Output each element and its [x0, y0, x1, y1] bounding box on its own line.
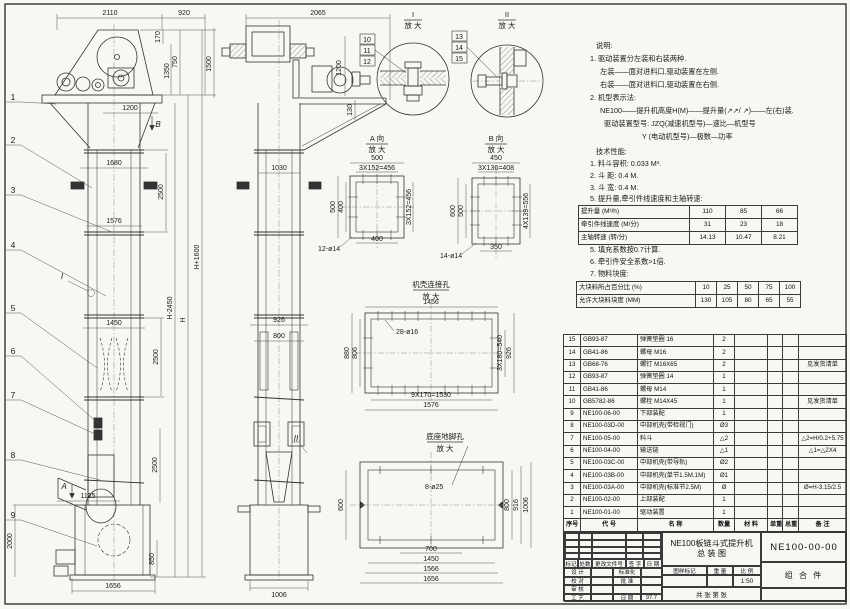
table-cell: GB41-86 [581, 347, 638, 359]
table-cell [799, 421, 847, 433]
dim-text: 3X152=456 [406, 189, 413, 225]
bom-header-cell: 总重 [783, 519, 799, 531]
table-cell: 1 [564, 507, 581, 519]
revision-header-cell: 更改文件号 [592, 559, 626, 568]
table-cell: NE100-05-00 [581, 433, 638, 445]
table-row: 12GB93-87弹簧垫圈 141 [564, 371, 847, 383]
table-cell: GB68-76 [581, 359, 638, 371]
dim-text: 9X170=1530 [411, 392, 451, 399]
revision-header-cell: 标记 [564, 559, 578, 568]
note-text: 右装——面对进料口,驱动装置在右侧. [600, 80, 719, 89]
table-cell: NE100-06-00 [581, 408, 638, 420]
table-cell [735, 408, 768, 420]
note-text: 技术性能: [596, 147, 627, 156]
table-cell: 105 [717, 295, 738, 308]
note-text: 5. 提升量,牵引件线速度和主轴转速: [590, 194, 703, 203]
box-text: 12 [363, 59, 371, 66]
table-cell: Ø3 [714, 421, 735, 433]
table-cell: 主轴转速 (转/分) [579, 232, 690, 245]
table-cell: 10 [696, 282, 717, 295]
table-row: 允许大块料块度 (MM)130105806555 [577, 295, 801, 308]
table-cell [783, 384, 799, 396]
title-text: 放 大 [404, 20, 422, 30]
signature-cell [641, 568, 662, 577]
table-cell: 85 [726, 206, 762, 219]
table-cell [735, 507, 768, 519]
drawing-number: NE100-00-00 [761, 532, 847, 562]
dim-text: 3X152=456 [359, 165, 395, 172]
scale-value: 1:50 [733, 575, 761, 587]
table-row: 牵引件线速度 (M/分)312318 [579, 219, 798, 232]
table-cell: 8 [564, 421, 581, 433]
revision-blank-cell [626, 533, 644, 540]
table-cell: 4 [564, 470, 581, 482]
table-cell [735, 384, 768, 396]
bom-header-cell: 名 称 [638, 519, 714, 531]
signature-row: 设 计标准化 [564, 568, 662, 577]
table-cell [735, 421, 768, 433]
table-cell [735, 482, 768, 494]
table-cell: Ø=H-3.15/2.5 [799, 482, 847, 494]
table-cell [768, 347, 783, 359]
table-cell [783, 359, 799, 371]
table-row: 6NE100-04-00输送链△1△1=△2X4 [564, 445, 847, 457]
table-cell: 见发货清单 [799, 396, 847, 408]
signature-row: 工 艺日 期97.7 [564, 594, 662, 603]
dim-text: 1576 [423, 402, 439, 409]
note-text: 6. 牵引件安全系数>1倍. [590, 257, 666, 266]
title-block: 标记处数更改文件号签 字日 期 设 计标准化校 对批 准审 核工 艺日 期97.… [563, 531, 846, 601]
revision-blank-cell [565, 540, 579, 547]
note-text: 左装——面对进料口,驱动装置在左侧. [600, 67, 719, 76]
table-cell: 输送链 [638, 445, 714, 457]
bom-parts-list: 15GB93-87弹簧垫圈 16214GB41-86螺母 M16213GB68-… [563, 334, 847, 532]
dimension-lines [5, 14, 531, 594]
dim-text: 600 [450, 205, 457, 217]
table-cell: 31 [690, 219, 726, 232]
table-cell [768, 359, 783, 371]
note-text: 5. 填充系数按0.7计算. [590, 245, 660, 254]
part-class: 组 合 件 [761, 562, 847, 588]
sheet-count: 共 张 第 张 [662, 587, 761, 602]
table-cell: 1 [714, 507, 735, 519]
signature-rows: 设 计标准化校 对批 准审 核工 艺日 期97.7 [564, 568, 662, 602]
tech-table-capacity: 提升量 (M³/h)1108566牵引件线速度 (M/分)312318主轴转速 … [578, 205, 798, 245]
scale-header-cell: 重 量 [707, 566, 733, 575]
table-cell: 6 [564, 445, 581, 457]
dim-text: 2500 [152, 457, 159, 473]
stamp-cell [662, 575, 707, 587]
dim-text: 12-ø14 [318, 246, 340, 253]
note-text: 1. 料斗容积: 0.033 M³. [590, 159, 661, 168]
table-cell: NE100-03D-00 [581, 421, 638, 433]
dim-text: 806 [352, 347, 359, 359]
revision-blank-cell [643, 533, 661, 540]
bom-header-cell: 备 注 [799, 519, 847, 531]
detail-ii [452, 20, 543, 117]
table-cell: 中部机壳(带检视门) [638, 421, 714, 433]
table-cell: NE100-02-00 [581, 494, 638, 506]
revision-blank-cell [579, 533, 593, 540]
signature-cell [591, 594, 613, 603]
table-cell [735, 433, 768, 445]
table-cell [783, 457, 799, 469]
balloon-text: 7 [11, 390, 16, 400]
table-cell: 1 [714, 384, 735, 396]
table-cell: 8.21 [762, 232, 798, 245]
table-cell: 130 [696, 295, 717, 308]
title-text: I [412, 10, 414, 19]
revision-blank-row [565, 540, 661, 547]
table-cell: Ø2 [714, 457, 735, 469]
table-cell: GB5782-86 [581, 396, 638, 408]
table-cell: Ø1 [714, 470, 735, 482]
table-cell: 驱动装置 [638, 507, 714, 519]
table-cell: 中部机壳(带导轨) [638, 457, 714, 469]
table-cell: 下部装配 [638, 408, 714, 420]
dim-text: 1566 [423, 566, 439, 573]
title-text: II [505, 10, 509, 19]
signature-cell [641, 585, 662, 594]
scale-header-cell: 比 例 [733, 566, 761, 575]
base-holes-detail [350, 442, 512, 548]
dim-text: 926 [273, 317, 285, 324]
revision-blank-row [565, 547, 661, 554]
table-cell: 25 [717, 282, 738, 295]
revision-header-cell: 处数 [578, 559, 592, 568]
table-cell: NE100-03C-00 [581, 457, 638, 469]
dim-text: 600 [338, 499, 345, 511]
table-cell: 10 [564, 396, 581, 408]
signature-cell: 审 核 [564, 585, 591, 594]
table-cell: GB41-86 [581, 384, 638, 396]
table-cell [783, 396, 799, 408]
revision-blank-cell [579, 540, 593, 547]
table-cell [799, 494, 847, 506]
revision-blank-cell [565, 533, 579, 540]
dim-text: 400 [371, 236, 383, 243]
table-cell: 弹簧垫圈 16 [638, 335, 714, 347]
balloon-text: 1 [11, 92, 16, 102]
box-text: 10 [363, 37, 371, 44]
table-cell [799, 507, 847, 519]
table-cell [783, 347, 799, 359]
table-row: 10GB5782-86螺栓 M14X451见发货清单 [564, 396, 847, 408]
title-text: 放 大 [487, 144, 505, 154]
dim-text: 1350 [164, 63, 171, 79]
note-text: 2. 斗 距: 0.4 M. [590, 171, 638, 180]
table-cell: 螺母 M16 [638, 347, 714, 359]
title-text: B 向 [489, 133, 504, 143]
revision-blank-cell [626, 540, 644, 547]
dim-text: 500 [458, 205, 465, 217]
dim-text: 130 [347, 104, 354, 116]
dim-text: 1200 [122, 105, 138, 112]
box-text: 11 [363, 48, 370, 55]
table-row: 13GB68-76螺钉 M16X652见发货清单 [564, 359, 847, 371]
revision-blank-cell [643, 540, 661, 547]
revision-header-row: 标记处数更改文件号签 字日 期 [564, 559, 662, 568]
table-cell: △2=H/0.2+5.75 [799, 433, 847, 445]
drawing-title-line1: NE100板链斗式提升机 [670, 539, 752, 549]
detail-i [360, 20, 449, 115]
dim-text: 850 [149, 553, 156, 565]
dim-text: 1456 [423, 299, 439, 306]
table-cell [799, 408, 847, 420]
side-elevation [222, 20, 386, 582]
signature-cell: 日 期 [613, 594, 641, 603]
table-cell [799, 371, 847, 383]
table-cell [735, 359, 768, 371]
table-cell [768, 470, 783, 482]
table-cell: 1 [714, 494, 735, 506]
dim-text: 1656 [105, 583, 121, 590]
table-cell: 13 [564, 359, 581, 371]
dim-text: 28-ø16 [396, 329, 418, 336]
bom-header-cell: 代 号 [581, 519, 638, 531]
table-cell: 80 [738, 295, 759, 308]
front-elevation [42, 24, 162, 582]
dim-text: 916 [513, 499, 520, 511]
table-cell: NE100-03B-00 [581, 470, 638, 482]
table-row: 1NE100-01-00驱动装置1 [564, 507, 847, 519]
dim-text: 14-ø14 [440, 253, 462, 260]
dim-text: 1006 [523, 497, 530, 513]
table-cell [735, 445, 768, 457]
table-cell: GB93-87 [581, 335, 638, 347]
table-cell: 9 [564, 408, 581, 420]
title-text: 机壳连接孔 [412, 279, 450, 289]
table-row: 2NE100-02-00上部装配1 [564, 494, 847, 506]
signature-cell: 设 计 [564, 568, 591, 577]
dim-text: 926 [506, 347, 513, 359]
table-cell: 2 [714, 359, 735, 371]
table-cell: 1 [714, 408, 735, 420]
dim-text: 3X136=408 [478, 165, 514, 172]
signature-cell: 批 准 [613, 577, 641, 586]
table-cell: 螺栓 M14X45 [638, 396, 714, 408]
table-row: 15GB93-87弹簧垫圈 162 [564, 335, 847, 347]
table-cell [735, 396, 768, 408]
dim-text: 750 [172, 56, 179, 68]
table-row: 大块料所占百分比 (%)10255075100 [577, 282, 801, 295]
revision-blank-cell [565, 547, 579, 554]
table-cell [768, 433, 783, 445]
note-text: 7. 物料块度: [590, 269, 629, 278]
dim-text: 450 [490, 155, 502, 162]
box-text: 15 [455, 56, 463, 63]
signature-cell [591, 568, 613, 577]
table-cell: 15 [564, 335, 581, 347]
table-cell [783, 421, 799, 433]
table-row: 主轴转速 (转/分)14.1310.478.21 [579, 232, 798, 245]
table-cell: 提升量 (M³/h) [579, 206, 690, 219]
table-cell [735, 347, 768, 359]
table-cell [735, 470, 768, 482]
dim-text: 2110 [102, 10, 117, 17]
table-cell [768, 445, 783, 457]
table-cell [768, 408, 783, 420]
dim-text: 500 [330, 201, 337, 213]
note-text: 驱动装置型号: JZQ(减速机型号)—速比—机型号 [604, 119, 756, 128]
table-cell: 18 [762, 219, 798, 232]
balloon-text: 6 [11, 346, 16, 356]
title-text: A 向 [370, 133, 384, 143]
table-cell [735, 494, 768, 506]
table-row: 提升量 (M³/h)1108566 [579, 206, 798, 219]
table-cell [799, 384, 847, 396]
table-cell [768, 335, 783, 347]
revision-blank-cell [592, 533, 625, 540]
title-text: 放 大 [436, 443, 454, 453]
table-cell: 5 [564, 457, 581, 469]
title-text: 底座地脚孔 [426, 431, 464, 441]
table-cell: 1 [714, 371, 735, 383]
dim-text: 2065 [310, 10, 326, 17]
dim-text: 500 [371, 155, 383, 162]
revision-blank-cell [643, 547, 661, 554]
dim-text: H [180, 317, 187, 322]
table-cell: NE100-01-00 [581, 507, 638, 519]
table-cell [768, 371, 783, 383]
table-cell: 1 [714, 396, 735, 408]
table-cell [783, 494, 799, 506]
table-cell: △1=△2X4 [799, 445, 847, 457]
table-row: 3NE100-03A-00中部机壳(标准节2.5M)ØØ=H-3.15/2.5 [564, 482, 847, 494]
signature-cell: 标准化 [613, 568, 641, 577]
title-block-spare [761, 588, 847, 602]
dim-text: 920 [178, 10, 190, 17]
dim-text: 1200 [336, 60, 343, 76]
dim-text: 400 [338, 201, 345, 213]
dim-text: 1680 [106, 160, 122, 167]
table-cell: △1 [714, 445, 735, 457]
table-cell [768, 507, 783, 519]
table-cell [783, 371, 799, 383]
bom-header-cell: 序号 [564, 519, 581, 531]
table-cell: 牵引件线速度 (M/分) [579, 219, 690, 232]
table-cell: 65 [759, 295, 780, 308]
box-text: 13 [455, 34, 463, 41]
note-text: 1. 驱动装置分左装和右装两种. [590, 54, 686, 63]
table-cell [783, 470, 799, 482]
mark-text: I [61, 272, 64, 281]
table-cell: 14.13 [690, 232, 726, 245]
dim-text: 2500 [158, 184, 165, 200]
signature-cell [591, 585, 613, 594]
note-text: 2. 机型表示法: [590, 93, 636, 102]
table-row: 7NE100-05-00料斗△2△2=H/0.2+5.75 [564, 433, 847, 445]
table-row: 8NE100-03D-00中部机壳(带检视门)Ø3 [564, 421, 847, 433]
dim-text: H-2450 [167, 296, 174, 319]
balloon-text: 9 [11, 510, 16, 520]
dim-text: 2000 [7, 533, 14, 549]
dim-text: H+1600 [194, 245, 201, 270]
revision-header-cell: 日 期 [644, 559, 662, 568]
table-cell: △2 [714, 433, 735, 445]
table-cell: NE100-03A-00 [581, 482, 638, 494]
balloon-text: 2 [11, 135, 16, 145]
table-cell: 螺母 M14 [638, 384, 714, 396]
dim-text: 8-ø25 [425, 484, 443, 491]
table-cell [783, 482, 799, 494]
table-cell [799, 470, 847, 482]
signature-cell: 工 艺 [564, 594, 591, 603]
signature-row: 审 核 [564, 585, 662, 594]
signature-cell [591, 577, 613, 586]
table-cell: 23 [726, 219, 762, 232]
revision-blank-row [565, 533, 661, 540]
dim-text: 4X139=556 [523, 193, 530, 229]
dim-text: 3X180=540 [497, 335, 504, 371]
title-text: 放 大 [498, 20, 516, 30]
table-cell: 中部机壳(单节1.5M,1M) [638, 470, 714, 482]
dim-text: 350 [490, 244, 502, 251]
table-cell [768, 457, 783, 469]
table-cell [768, 494, 783, 506]
drawing-title-line2: 总 装 图 [697, 549, 726, 559]
table-cell [735, 335, 768, 347]
dim-text: 1450 [423, 556, 439, 563]
table-cell: 螺钉 M16X65 [638, 359, 714, 371]
table-row: 14GB41-86螺母 M162 [564, 347, 847, 359]
table-cell: 7 [564, 433, 581, 445]
table-cell [768, 384, 783, 396]
note-text: Y (电动机型号)—极数—功率 [642, 132, 733, 141]
table-cell: GB93-87 [581, 371, 638, 383]
tech-table-lump-size: 大块料所占百分比 (%)10255075100允许大块料块度 (MM)13010… [576, 281, 801, 308]
table-cell: 100 [780, 282, 801, 295]
mark-text: II [294, 434, 299, 443]
table-cell: 2 [714, 335, 735, 347]
bom-header-cell: 材 料 [735, 519, 768, 531]
bom-header-cell: 数量 [714, 519, 735, 531]
revision-blank-cell [579, 547, 593, 554]
table-cell: 3 [564, 482, 581, 494]
table-cell [799, 457, 847, 469]
dim-text: 2500 [153, 349, 160, 365]
table-cell: 66 [762, 206, 798, 219]
table-cell: 2 [564, 494, 581, 506]
table-cell: 上部装配 [638, 494, 714, 506]
table-cell: 大块料所占百分比 (%) [577, 282, 696, 295]
mark-text: A [60, 482, 66, 491]
dim-text: 1576 [106, 218, 122, 225]
table-cell [735, 457, 768, 469]
table-cell [783, 408, 799, 420]
dim-text: 1500 [206, 56, 213, 72]
dim-text: 1006 [271, 592, 287, 599]
table-row: 5NE100-03C-00中部机壳(带导轨)Ø2 [564, 457, 847, 469]
table-cell: 允许大块料块度 (MM) [577, 295, 696, 308]
table-cell: 55 [780, 295, 801, 308]
engineering-drawing-sheet: 说明:1. 驱动装置分左装和右装两种.左装——面对进料口,驱动装置在左侧.右装—… [0, 0, 850, 609]
bom-header-cell: 单重 [768, 519, 783, 531]
revision-header-cell: 签 字 [626, 559, 644, 568]
table-cell [768, 482, 783, 494]
dim-text: 880 [344, 347, 351, 359]
table-cell [799, 335, 847, 347]
table-cell [735, 371, 768, 383]
weight-cell [707, 575, 733, 587]
revision-rows [564, 532, 662, 559]
signature-cell: 97.7 [641, 594, 662, 603]
table-cell: 110 [690, 206, 726, 219]
dim-text: 800 [504, 499, 511, 511]
dim-text: 1450 [106, 320, 122, 327]
dim-text: 1030 [271, 165, 287, 172]
table-cell [768, 396, 783, 408]
